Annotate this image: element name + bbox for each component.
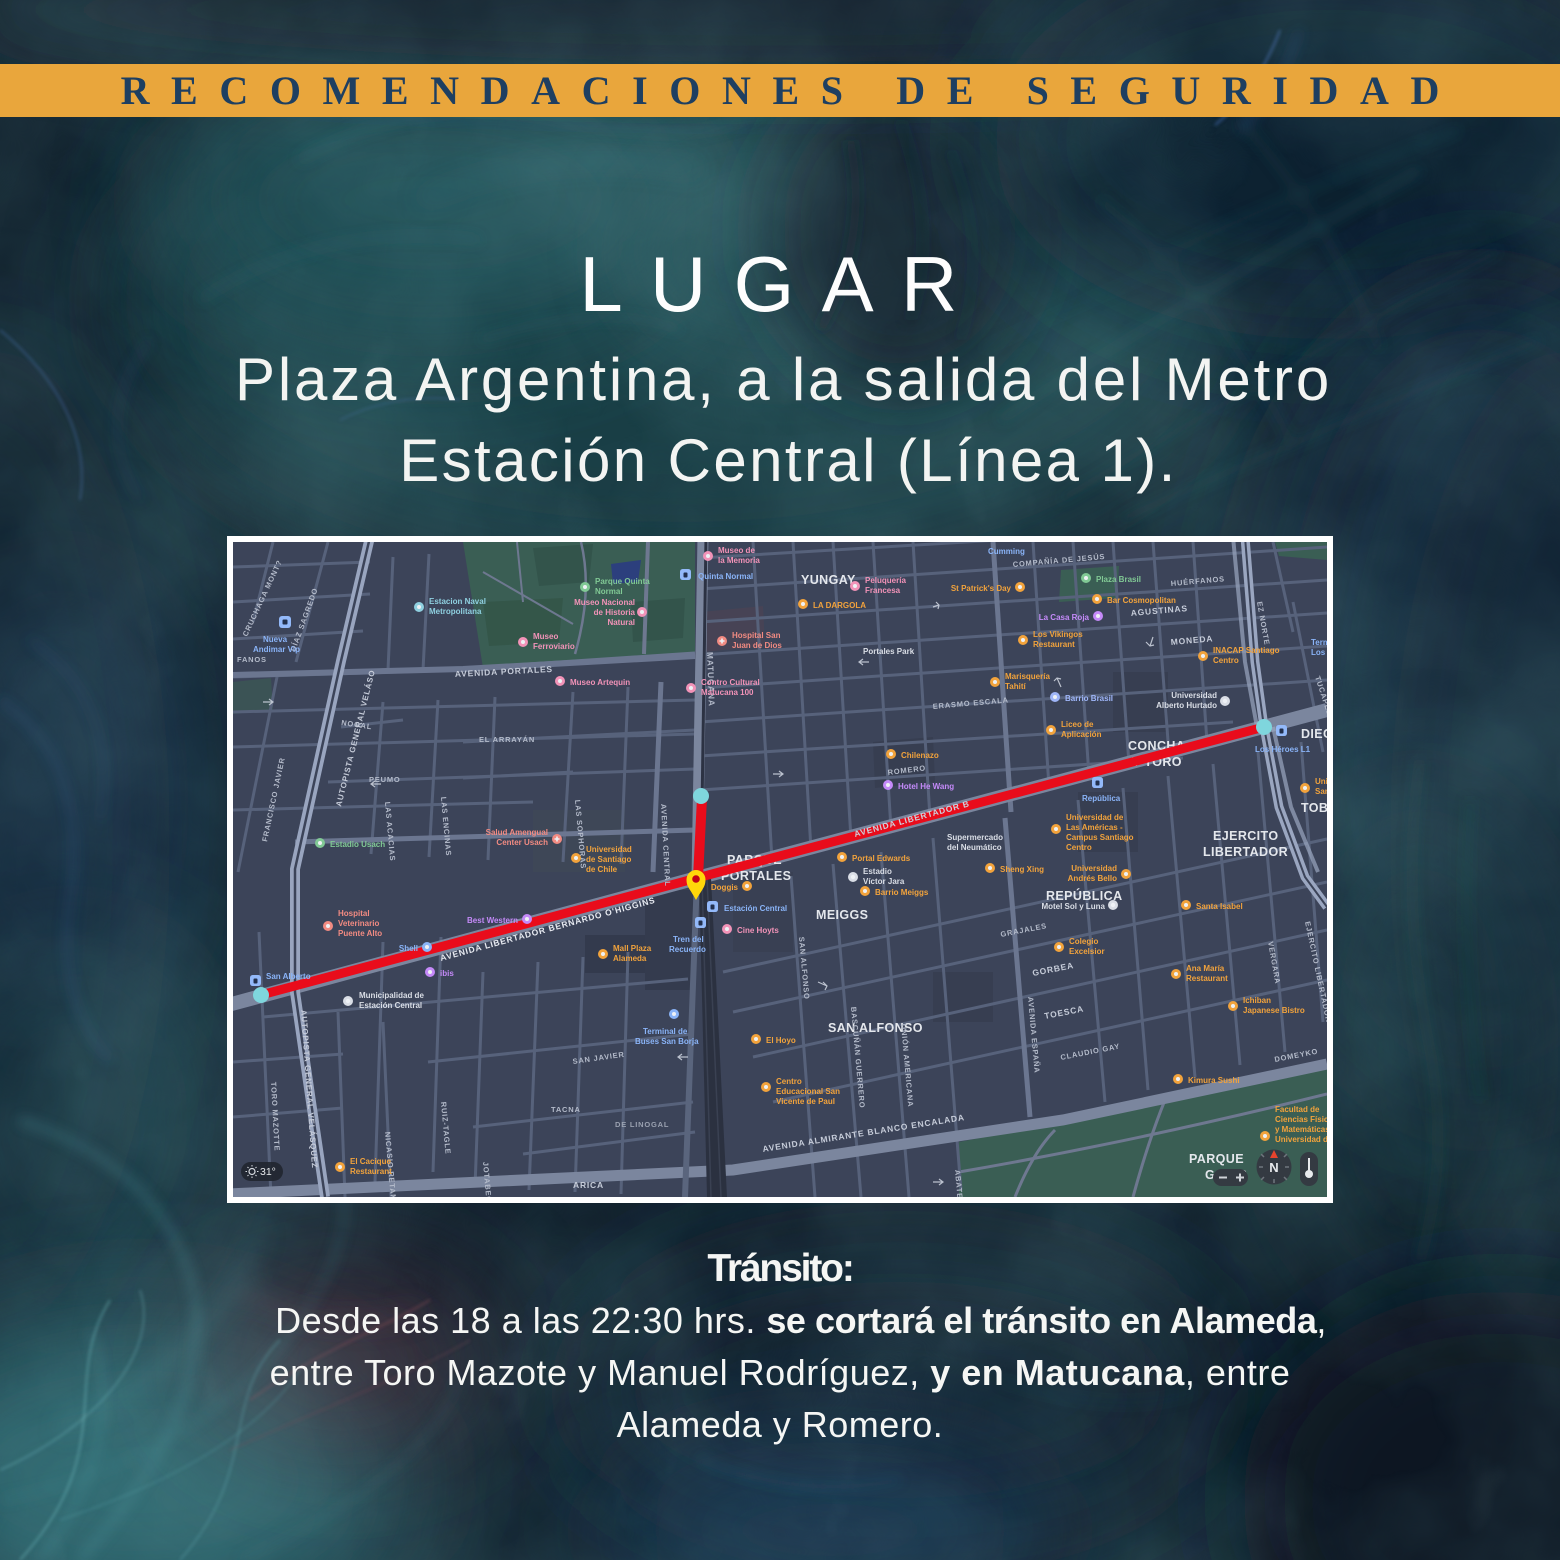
svg-text:LA DARGOLA: LA DARGOLA — [813, 601, 866, 610]
svg-text:Plaza Brasil: Plaza Brasil — [1096, 575, 1141, 584]
svg-text:Los Héroes L1: Los Héroes L1 — [1255, 745, 1311, 754]
svg-text:Estación Central: Estación Central — [359, 1001, 422, 1010]
svg-text:Portales Park: Portales Park — [863, 647, 915, 656]
svg-text:Best Western: Best Western — [467, 916, 518, 925]
svg-text:ARICA: ARICA — [573, 1180, 604, 1190]
svg-text:Andrés Bello: Andrés Bello — [1068, 874, 1117, 883]
svg-text:Educacional San: Educacional San — [776, 1087, 840, 1096]
svg-text:Centro: Centro — [1066, 843, 1092, 852]
svg-text:Hotel He Wang: Hotel He Wang — [898, 782, 954, 791]
svg-text:Las Américas -: Las Américas - — [1066, 823, 1123, 832]
svg-text:Terminal de: Terminal de — [643, 1027, 688, 1036]
svg-text:Contro Cultural: Contro Cultural — [701, 678, 760, 687]
svg-text:Ferroviario: Ferroviario — [533, 642, 575, 651]
svg-text:Marisquería: Marisquería — [1005, 672, 1050, 681]
svg-text:Santo T: Santo T — [1315, 787, 1327, 796]
svg-text:EL ARRAYÁN: EL ARRAYÁN — [479, 735, 535, 744]
svg-text:Kimura Sushi: Kimura Sushi — [1188, 1076, 1240, 1085]
svg-text:Universidad: Universidad — [586, 845, 632, 854]
svg-text:Universidad: Universidad — [1171, 691, 1217, 700]
svg-text:Portal Edwards: Portal Edwards — [852, 854, 911, 863]
svg-text:Facultad de: Facultad de — [1275, 1105, 1320, 1114]
svg-text:Normal: Normal — [595, 587, 623, 596]
svg-text:Recuerdo: Recuerdo — [669, 945, 706, 954]
svg-text:Estación Central: Estación Central — [724, 904, 787, 913]
svg-text:Center Usach: Center Usach — [496, 838, 548, 847]
svg-text:Museo Nacional: Museo Nacional — [574, 598, 635, 607]
svg-text:Liceo de: Liceo de — [1061, 720, 1094, 729]
svg-text:Museo Artequin: Museo Artequin — [570, 678, 630, 687]
svg-text:San Alberto: San Alberto — [266, 972, 311, 981]
svg-text:Metropolitana: Metropolitana — [429, 607, 482, 616]
svg-text:Estadio Usach: Estadio Usach — [330, 840, 385, 849]
svg-text:Museo: Museo — [533, 632, 558, 641]
svg-text:de Chile: de Chile — [586, 865, 618, 874]
svg-text:de Historia: de Historia — [594, 608, 636, 617]
svg-text:Ciencias Física: Ciencias Física — [1275, 1115, 1327, 1124]
svg-text:Parque Quinta: Parque Quinta — [595, 577, 650, 586]
svg-text:Centro: Centro — [1213, 656, 1239, 665]
svg-text:Los Vikingos: Los Vikingos — [1033, 630, 1083, 639]
svg-text:Municipalidad de: Municipalidad de — [359, 991, 424, 1000]
svg-text:del Neumático: del Neumático — [947, 843, 1002, 852]
svg-text:La Casa Roja: La Casa Roja — [1039, 613, 1090, 622]
svg-text:Quinta Normal: Quinta Normal — [698, 572, 753, 581]
svg-text:Restaurant: Restaurant — [1033, 640, 1075, 649]
svg-text:Tren del: Tren del — [673, 935, 704, 944]
svg-text:Matucana 100: Matucana 100 — [701, 688, 754, 697]
svg-text:Centro: Centro — [776, 1077, 802, 1086]
svg-text:Natural: Natural — [607, 618, 635, 627]
svg-text:Termin: Termin — [1311, 638, 1327, 647]
svg-text:Barrio Meiggs: Barrio Meiggs — [875, 888, 929, 897]
svg-text:Restaurant: Restaurant — [350, 1167, 392, 1176]
svg-text:Museo de: Museo de — [718, 546, 755, 555]
svg-text:YUNGAY: YUNGAY — [801, 573, 856, 587]
svg-text:Restaurant: Restaurant — [1186, 974, 1228, 983]
svg-text:Los Hé: Los Hé — [1311, 648, 1327, 657]
svg-text:Estadio: Estadio — [863, 867, 892, 876]
svg-text:El Hoyo: El Hoyo — [766, 1036, 796, 1045]
svg-text:Excelsior: Excelsior — [1069, 947, 1105, 956]
svg-text:Puente Alto: Puente Alto — [338, 929, 382, 938]
svg-text:Santa Isabel: Santa Isabel — [1196, 902, 1243, 911]
svg-text:N: N — [1269, 1160, 1278, 1175]
svg-text:Alberto Hurtado: Alberto Hurtado — [1156, 701, 1217, 710]
svg-text:Doggis: Doggis — [711, 883, 739, 892]
svg-text:St Patrick's Day: St Patrick's Day — [951, 584, 1012, 593]
svg-text:Veterinario: Veterinario — [338, 919, 379, 928]
svg-text:de Santiago: de Santiago — [586, 855, 631, 864]
svg-text:Japanese Bistro: Japanese Bistro — [1243, 1006, 1305, 1015]
svg-text:Vicente de Paul: Vicente de Paul — [776, 1097, 835, 1106]
svg-text:Peluquería: Peluquería — [865, 576, 906, 585]
svg-text:ibis: ibis — [440, 969, 454, 978]
svg-text:Cine Hoyts: Cine Hoyts — [737, 926, 779, 935]
svg-text:Hospital San: Hospital San — [732, 631, 781, 640]
svg-text:Nueva: Nueva — [263, 635, 288, 644]
svg-text:Campus Santiago: Campus Santiago — [1066, 833, 1134, 842]
svg-text:Mall Plaza: Mall Plaza — [613, 944, 652, 953]
svg-text:Barrio Brasil: Barrio Brasil — [1065, 694, 1113, 703]
svg-text:Víctor Jara: Víctor Jara — [863, 877, 905, 886]
svg-text:Supermercado: Supermercado — [947, 833, 1003, 842]
svg-text:Estacion Naval: Estacion Naval — [429, 597, 486, 606]
svg-text:Salud Amengual: Salud Amengual — [486, 828, 548, 837]
svg-text:Chilenazo: Chilenazo — [901, 751, 939, 760]
svg-text:Universidad de: Universidad de — [1066, 813, 1124, 822]
svg-text:Sheng Xing: Sheng Xing — [1000, 865, 1044, 874]
svg-text:y Matemáticas: y Matemáticas — [1275, 1125, 1327, 1134]
svg-text:MEIGGS: MEIGGS — [816, 908, 868, 922]
svg-text:Shell: Shell — [399, 944, 418, 953]
svg-text:Tahití: Tahití — [1005, 682, 1027, 691]
svg-text:INACAP Santiago: INACAP Santiago — [1213, 646, 1280, 655]
svg-text:Motel Sol y Luna: Motel Sol y Luna — [1041, 902, 1105, 911]
svg-text:Buses San Borja: Buses San Borja — [635, 1037, 699, 1046]
svg-text:Alameda: Alameda — [613, 954, 647, 963]
svg-text:Universidad: Universidad — [1071, 864, 1117, 873]
svg-text:Juan de Dios: Juan de Dios — [732, 641, 782, 650]
svg-text:Andimar Vip: Andimar Vip — [253, 645, 300, 654]
svg-text:EJERCITO: EJERCITO — [1213, 829, 1279, 843]
svg-text:Ichiban: Ichiban — [1243, 996, 1271, 1005]
svg-text:República: República — [1082, 794, 1121, 803]
svg-text:El Cacique: El Cacique — [350, 1157, 391, 1166]
svg-text:Universidad de: Universidad de — [1275, 1135, 1327, 1144]
svg-text:TOB: TOB — [1301, 801, 1327, 815]
svg-text:DE LINOGAL: DE LINOGAL — [615, 1120, 669, 1129]
svg-text:Francesa: Francesa — [865, 586, 901, 595]
svg-text:Cumming: Cumming — [988, 547, 1025, 556]
svg-text:la Memoria: la Memoria — [718, 556, 760, 565]
svg-text:TACNA: TACNA — [551, 1105, 581, 1114]
svg-text:DIECIOCHO: DIECIOCHO — [1301, 727, 1327, 741]
svg-text:Ana María: Ana María — [1186, 964, 1225, 973]
svg-text:Aplicación: Aplicación — [1061, 730, 1102, 739]
svg-text:Colegio: Colegio — [1069, 937, 1098, 946]
svg-text:LIBERTADOR: LIBERTADOR — [1203, 845, 1288, 859]
svg-text:Univers: Univers — [1315, 777, 1327, 786]
svg-text:Hospital: Hospital — [338, 909, 370, 918]
svg-text:FANOS: FANOS — [237, 655, 267, 664]
svg-text:PARQUE: PARQUE — [1189, 1152, 1244, 1166]
svg-text:Bar Cosmopolitan: Bar Cosmopolitan — [1107, 596, 1176, 605]
svg-text:31°: 31° — [260, 1166, 276, 1178]
